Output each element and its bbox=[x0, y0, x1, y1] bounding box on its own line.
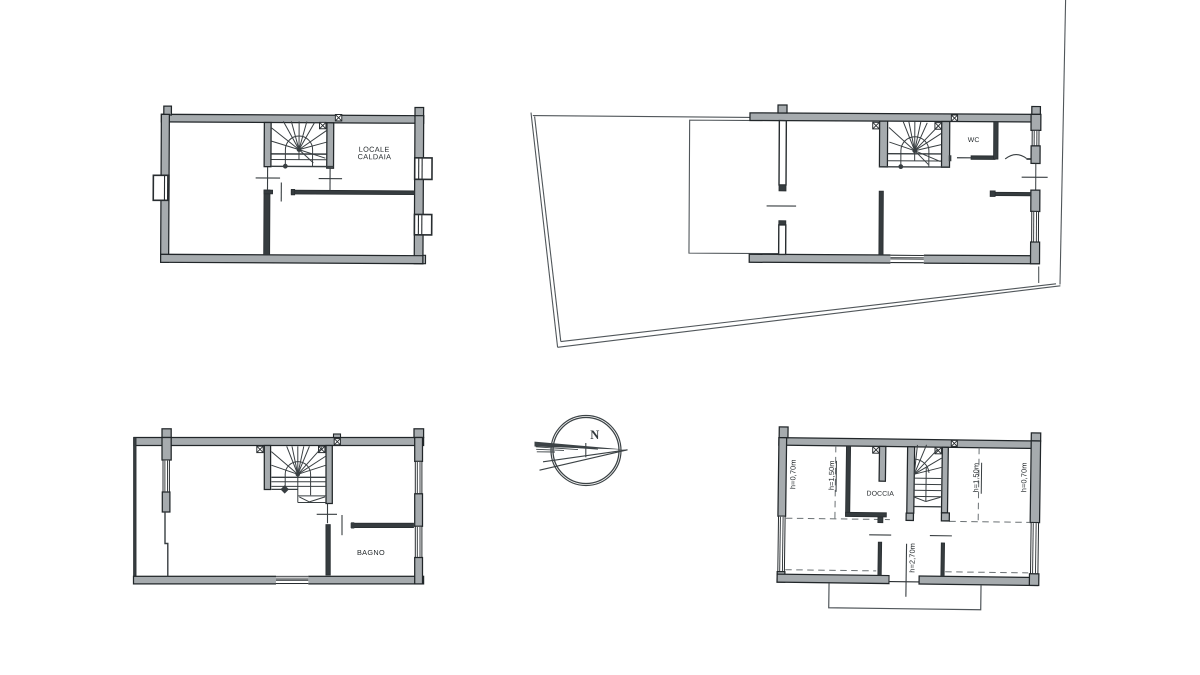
svg-text:CALDAIA: CALDAIA bbox=[358, 152, 392, 161]
svg-text:h=0,70m: h=0,70m bbox=[788, 459, 797, 489]
svg-text:DOCCIA: DOCCIA bbox=[866, 491, 894, 498]
svg-text:h=0,70m: h=0,70m bbox=[1019, 462, 1028, 492]
svg-text:N: N bbox=[590, 428, 599, 442]
svg-text:WC: WC bbox=[968, 137, 980, 144]
svg-text:h=1,50m: h=1,50m bbox=[971, 463, 980, 493]
svg-text:h=2,70m: h=2,70m bbox=[907, 543, 916, 573]
svg-text:h=1,50m: h=1,50m bbox=[827, 460, 836, 490]
svg-text:BAGNO: BAGNO bbox=[357, 548, 385, 557]
